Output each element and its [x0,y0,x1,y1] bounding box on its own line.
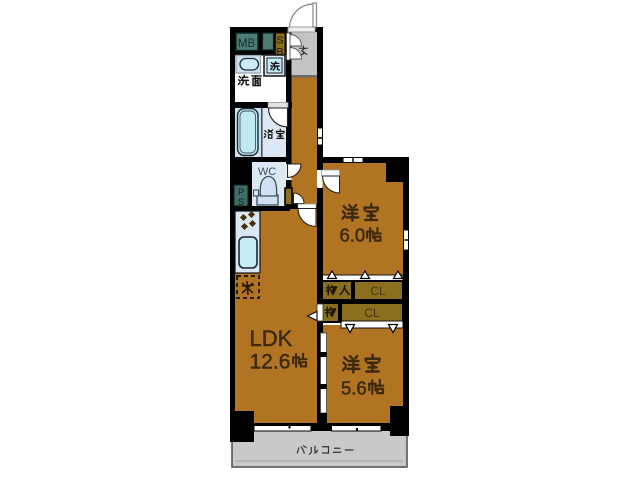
svg-text:MB: MB [238,38,256,50]
svg-text:CL: CL [370,284,386,298]
svg-text:LDK: LDK [250,326,293,351]
svg-text:S: S [276,35,283,47]
svg-text:6.0: 6.0 [340,225,366,246]
svg-text:5.6: 5.6 [341,378,367,399]
svg-text:12.6: 12.6 [250,351,291,374]
svg-text:CL: CL [364,306,380,320]
svg-text:S: S [238,197,244,208]
svg-text:WC: WC [258,166,276,178]
svg-text:B: B [276,46,283,58]
